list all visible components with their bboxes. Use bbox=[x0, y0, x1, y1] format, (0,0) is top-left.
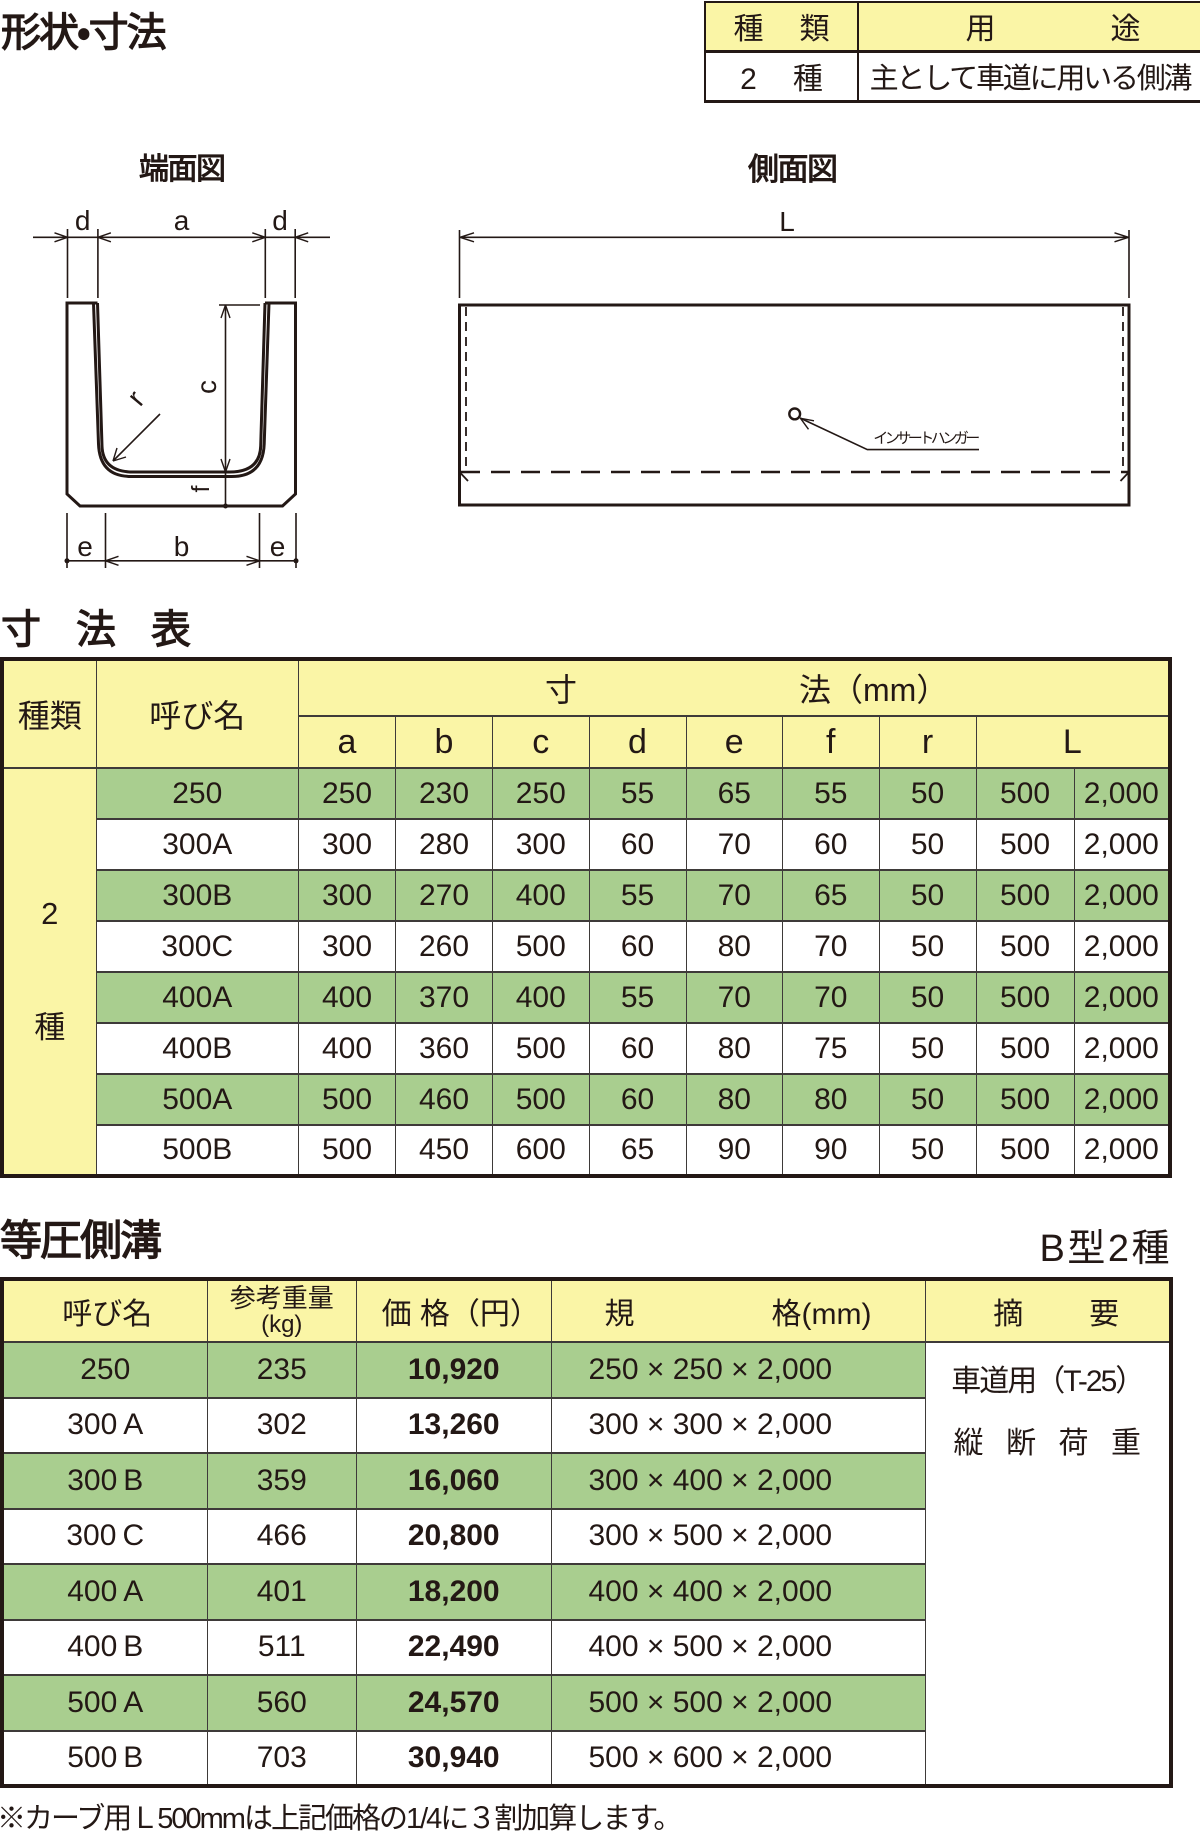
svg-text:c: c bbox=[191, 380, 222, 394]
svg-text:e: e bbox=[77, 531, 93, 562]
svg-text:L: L bbox=[779, 206, 795, 237]
svg-text:r: r bbox=[121, 384, 151, 411]
svg-text:e: e bbox=[270, 531, 286, 562]
svg-text:f: f bbox=[187, 485, 215, 492]
svg-text:d: d bbox=[75, 205, 91, 236]
svg-text:a: a bbox=[174, 205, 190, 236]
svg-text:d: d bbox=[272, 205, 288, 236]
svg-text:インサートハンガー: インサートハンガー bbox=[873, 430, 979, 447]
svg-text:b: b bbox=[174, 531, 190, 562]
